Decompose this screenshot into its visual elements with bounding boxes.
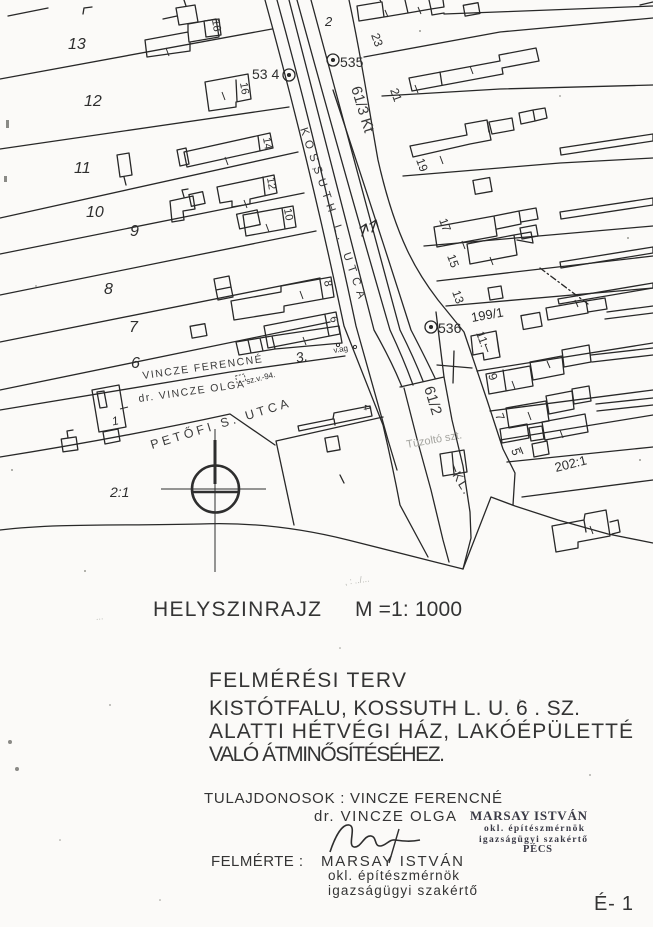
svg-text:9: 9 [130,223,139,240]
svg-text:2:1: 2:1 [109,484,129,500]
svg-text:PÉCS: PÉCS [523,843,552,855]
svg-text:okl. építészmérnök: okl. építészmérnök [484,824,585,834]
svg-text:17: 17 [436,216,454,234]
svg-text:FELMÉRÉSI TERV: FELMÉRÉSI TERV [209,669,406,692]
svg-text:igazságügyi szakértő: igazságügyi szakértő [328,883,477,898]
svg-text:12: 12 [84,93,102,110]
svg-text:8: 8 [104,281,113,298]
svg-text:ALATTI HÉTVÉGI HÁZ, LAKÓÉPÜ: ALATTI HÉTVÉGI HÁZ, LAKÓÉPÜLETTÉ [209,720,633,743]
svg-text:18: 18 [209,18,223,32]
svg-text:3.: 3. [294,348,309,366]
svg-text:Tüzoltó szt.: Tüzoltó szt. [405,429,462,451]
svg-text:23: 23 [368,31,386,49]
svg-text:7: 7 [129,319,139,336]
svg-text:5: 5 [508,446,524,457]
svg-text:FELMÉRTE :: FELMÉRTE : [211,853,303,870]
svg-text:M =1: 1000: M =1: 1000 [355,598,462,621]
svg-text:10: 10 [86,204,104,221]
svg-text:7: 7 [492,411,508,422]
svg-text:16: 16 [237,81,251,95]
svg-text:9: 9 [485,371,501,382]
svg-text:KOSSUTH L. UTCA: KOSSUTH L. UTCA [297,126,369,305]
svg-text:KL.: KL. [449,469,475,499]
svg-text:15: 15 [444,252,462,270]
svg-text:, : ../...: , : ../... [344,574,370,587]
svg-text:535: 535 [340,54,364,70]
svg-text:10: 10 [281,207,295,221]
svg-text:12: 12 [264,176,278,190]
svg-text:21: 21 [387,86,405,104]
svg-text:sz.v.-94.: sz.v.-94. [245,370,276,386]
svg-text:202:1: 202:1 [553,452,588,474]
svg-text:6: 6 [131,355,140,372]
svg-text:KISTÓTFALU, KOSSUTH L. U. 6: KISTÓTFALU, KOSSUTH L. U. 6 . SZ. [209,697,580,720]
svg-text:VALÓ ÁTMINŐSÍTÉSÉHEZ.: VALÓ ÁTMINŐSÍTÉSÉHEZ. [209,743,445,766]
svg-text:199/1: 199/1 [470,305,505,325]
svg-text:HELYSZINRAJZ: HELYSZINRAJZ [153,598,321,621]
svg-text:dr. VINCZE OLGA: dr. VINCZE OLGA [314,808,456,825]
svg-text:19: 19 [413,156,431,174]
svg-text:53 4: 53 4 [252,66,279,82]
svg-text:MARSAY ISTVÁN: MARSAY ISTVÁN [470,808,588,823]
svg-text:536: 536 [438,320,462,336]
svg-text:okl. építészmérnök: okl. építészmérnök [328,868,459,883]
svg-text:14: 14 [260,136,274,150]
svg-text:É- 1: É- 1 [594,892,633,915]
svg-text:13: 13 [449,288,467,306]
svg-text:dr. VINCZE OLGA: dr. VINCZE OLGA [138,378,246,405]
svg-text:11: 11 [74,160,91,177]
svg-text:1: 1 [110,413,119,428]
svg-text:2: 2 [324,14,333,29]
svg-text:61/3 Kt: 61/3 Kt [347,84,377,135]
svg-text:...: ... [95,611,104,622]
svg-text:61/2: 61/2 [420,384,445,417]
svg-text:v.ag: v.ag [333,344,349,355]
svg-text:13: 13 [68,36,86,53]
svg-text:TULAJDONOSOK : VINCZE FERENCN: TULAJDONOSOK : VINCZE FERENCNÉ [204,790,502,807]
